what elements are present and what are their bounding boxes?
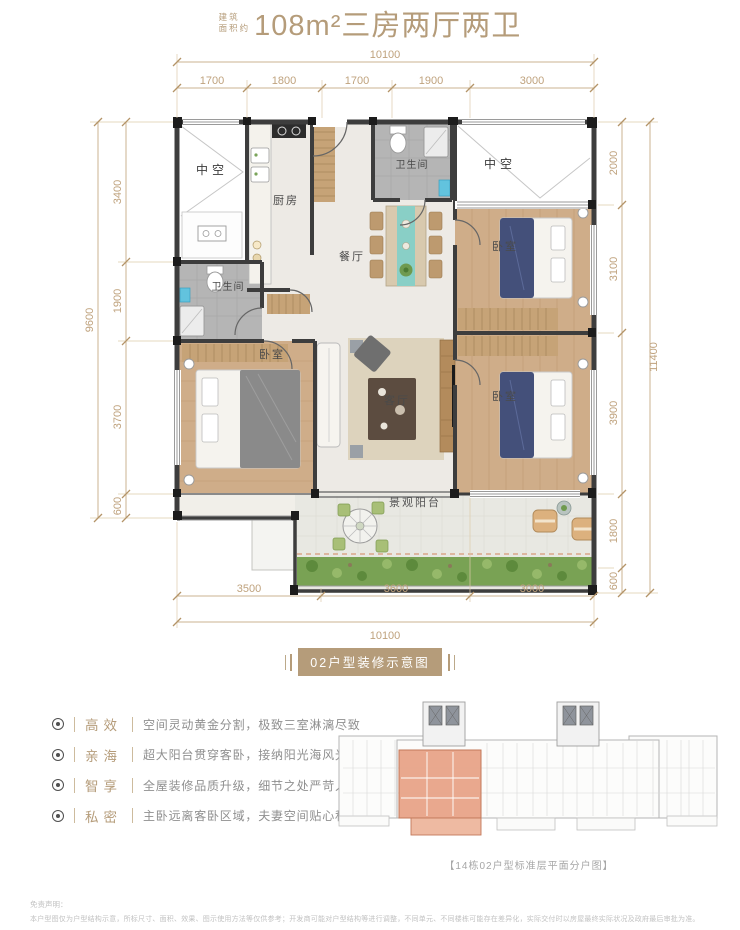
badge-row: 02户型装修示意图: [0, 648, 740, 676]
floor-plan: 中空 厨房 卫生间 中空 餐厅 卧室 卫生间 卧室 客厅 卧室 景观阳台: [0, 40, 740, 648]
disclaimer-title: 免责声明：: [30, 899, 720, 910]
dim-right-seg-2: 3100: [608, 257, 620, 281]
room-label-bedroom-left: 卧室: [259, 347, 285, 361]
room-label-void-left: 中空: [196, 162, 228, 177]
dim-top-seg-4: 1900: [419, 75, 443, 87]
badge-ornament-left-inner: [290, 654, 292, 671]
dim-right-seg-1: 2000: [608, 151, 620, 175]
page-title: 建筑 面积约 108m²三房两厅两卫: [0, 2, 740, 44]
feature-text: 主卧远离客卧区域，夫妻空间贴心私密: [143, 807, 361, 824]
disclaimer-body: 本户型图仅为户型结构示意，所标尺寸、面积、效果、图示使用方法等仅供参考；开发商可…: [30, 914, 720, 924]
room-label-kitchen: 厨房: [273, 194, 299, 207]
keyplan-caption: 【14栋02户型标准层平面分户图】: [337, 857, 721, 872]
badge-ornament-right-outer: [454, 655, 455, 670]
divider: [74, 717, 75, 732]
divider: [132, 747, 133, 762]
feature-text: 空间灵动黄金分割，极致三室淋漓尽致: [143, 716, 361, 733]
room-label-living: 客厅: [384, 393, 410, 407]
divider: [74, 808, 75, 823]
keyplan-elevator-cores: [423, 702, 599, 746]
room-label-bath-left: 卫生间: [212, 280, 245, 293]
keyplan-highlighted-unit: [399, 750, 481, 835]
feature-row: 高效 空间灵动黄金分割，极致三室淋漓尽致: [52, 716, 352, 732]
dim-right-seg-5: 600: [608, 572, 620, 590]
divider: [74, 778, 75, 793]
dining-set: [370, 206, 442, 286]
feature-label: 智享: [85, 775, 122, 795]
dim-left-seg-4: 600: [112, 497, 124, 515]
bullet-icon: [52, 810, 64, 822]
divider: [132, 717, 133, 732]
badge-ornament-left-outer: [285, 655, 286, 670]
feature-text: 超大阳台贯穿客卧，接纳阳光海风光临: [143, 746, 361, 763]
dim-bottom-seg-3: 3000: [520, 583, 544, 595]
dim-left-seg-3: 3700: [112, 405, 124, 429]
dim-left-total: 9600: [84, 308, 96, 332]
room-label-balcony: 景观阳台: [389, 495, 441, 509]
feature-label: 私密: [85, 806, 122, 826]
dim-bottom-total: 10100: [370, 630, 401, 642]
room-label-bedroom-right-bottom: 卧室: [492, 389, 518, 403]
keyplan-outline: [339, 736, 717, 830]
room-label-bath-top: 卫生间: [396, 158, 429, 171]
bullet-icon: [52, 779, 64, 791]
title-prefix-line1: 建筑: [219, 12, 251, 23]
feature-text: 全屋装修品质升级，细节之处严苛入微: [143, 777, 361, 794]
dim-top-seg-2: 1800: [272, 75, 296, 87]
bullet-icon: [52, 718, 64, 730]
feature-list: 高效 空间灵动黄金分割，极致三室淋漓尽致 亲海 超大阳台贯穿客卧，接纳阳光海风光…: [52, 716, 352, 838]
dim-left-seg-2: 1900: [112, 289, 124, 313]
divider: [132, 778, 133, 793]
building-key-plan: [337, 698, 721, 850]
room-label-dining: 餐厅: [339, 249, 365, 263]
dim-top-seg-1: 1700: [200, 75, 224, 87]
badge-ornament-right-inner: [448, 654, 450, 671]
title-prefix-line2: 面积约: [219, 23, 251, 34]
dim-top-total: 10100: [370, 49, 401, 61]
feature-row: 私密 主卧远离客卧区域，夫妻空间贴心私密: [52, 808, 352, 824]
bullet-icon: [52, 749, 64, 761]
room-label-bedroom-right-top: 卧室: [492, 239, 518, 253]
room-label-void-right: 中空: [484, 156, 516, 171]
divider: [132, 808, 133, 823]
dim-right-seg-4: 1800: [608, 519, 620, 543]
feature-row: 智享 全屋装修品质升级，细节之处严苛入微: [52, 777, 352, 793]
disclaimer: 免责声明： 本户型图仅为户型结构示意，所标尺寸、面积、效果、图示使用方法等仅供参…: [30, 899, 720, 924]
plan-type-badge: 02户型装修示意图: [298, 648, 441, 676]
title-area-prefix: 建筑 面积约: [219, 12, 251, 35]
dim-bottom-seg-1: 3500: [237, 583, 261, 595]
dim-right-total: 11400: [648, 342, 660, 372]
dim-top-seg-3: 1700: [345, 75, 369, 87]
dim-bottom-seg-2: 3600: [384, 583, 408, 595]
title-main: 108m²三房两厅两卫: [254, 2, 521, 44]
feature-label: 高效: [85, 714, 122, 734]
utility-box: [182, 212, 242, 258]
dim-left-seg-1: 3400: [112, 180, 124, 204]
dim-top-seg-5: 3000: [520, 75, 544, 87]
dim-right-seg-3: 3900: [608, 401, 620, 425]
feature-label: 亲海: [85, 745, 122, 765]
divider: [74, 747, 75, 762]
feature-row: 亲海 超大阳台贯穿客卧，接纳阳光海风光临: [52, 747, 352, 763]
